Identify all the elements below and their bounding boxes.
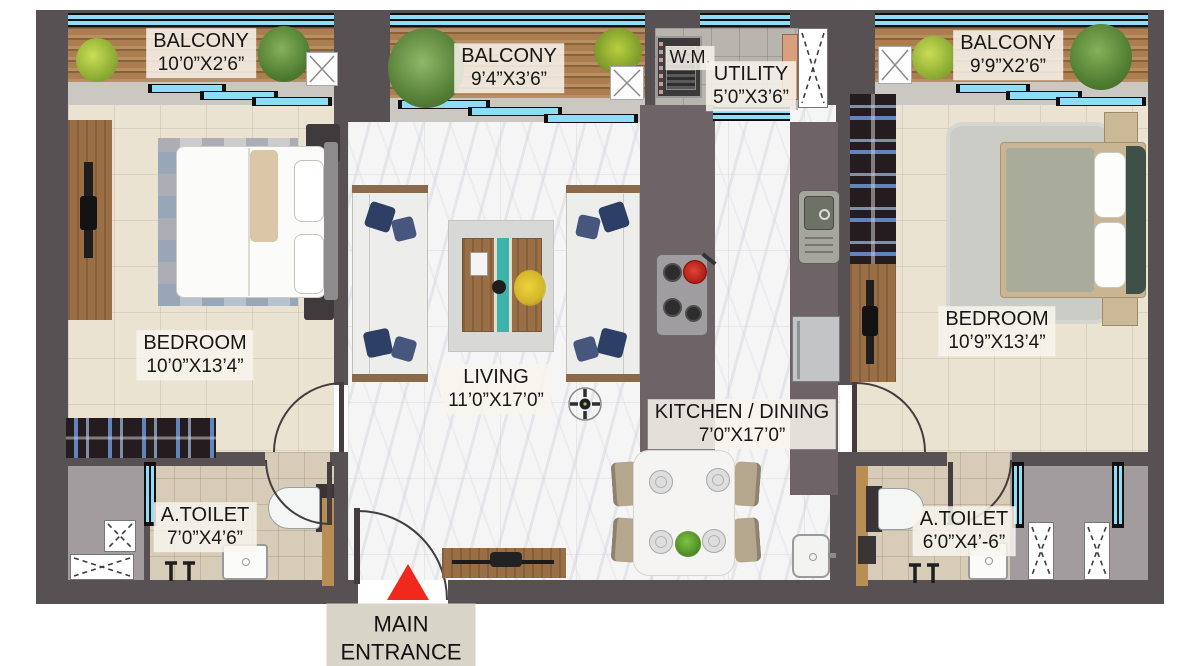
wall-duct-left-edge	[144, 526, 150, 590]
dining-chair-4	[732, 517, 761, 563]
room-dims: 10’0”X13’4”	[143, 356, 246, 379]
vent-duct-right-b	[1084, 522, 1110, 580]
refrigerator	[792, 316, 840, 382]
window-top-balcony-mid	[390, 13, 645, 27]
sofa-left	[352, 185, 428, 382]
room-dims: 5’0”X3’6”	[713, 87, 789, 110]
drain-marker-balcony-mid	[610, 66, 644, 100]
hob-cooktop	[656, 254, 708, 336]
toilet-right-shower-taps	[906, 558, 946, 584]
plant-balcony-mid-bush	[388, 28, 464, 108]
room-name: KITCHEN / DINING	[655, 400, 829, 424]
label-utility: UTILITY 5’0”X3’6”	[706, 61, 796, 111]
bed-left-headboard	[324, 142, 338, 300]
room-name: BEDROOM	[945, 307, 1048, 331]
room-dims: 9’4”X3’6”	[461, 69, 557, 92]
drain-marker-balcony-left	[306, 52, 338, 86]
coffee-table-book	[470, 252, 488, 276]
sofa-right	[566, 185, 640, 382]
wall-balcony-utility-divider	[645, 10, 655, 110]
label-bedroom-left: BEDROOM 10’0”X13’4”	[136, 330, 253, 380]
wall-bedroom-right-bottom-b	[1012, 452, 1148, 466]
window-top-utility	[700, 13, 790, 27]
room-dims: 11’0”X17’0”	[448, 390, 544, 413]
wardrobe-bedroom-left	[66, 418, 216, 458]
label-bedroom-right: BEDROOM 10’9”X13’4”	[938, 306, 1055, 356]
bed-right-headboard	[1126, 146, 1146, 294]
room-name: LIVING	[448, 365, 544, 389]
label-living: LIVING 11’0”X17’0”	[441, 364, 551, 414]
bed-left-throw	[250, 150, 278, 242]
room-dims: 10’0”X2’6”	[153, 54, 249, 77]
plant-balcony-left-bush	[258, 26, 310, 82]
wardrobe-bedroom-right	[850, 94, 896, 264]
bed-right-pillow-1	[1094, 152, 1126, 218]
plant-balcony-right-bush	[1070, 24, 1132, 90]
window-top-balcony-left	[68, 13, 334, 27]
wall-bottom-left	[36, 580, 358, 604]
drain-marker-balcony-right	[878, 46, 912, 84]
room-dims: 9’9”X2’6”	[960, 56, 1056, 79]
label-toilet-right: A.TOILET 6’0”X4’-6”	[913, 506, 1016, 556]
wall-toilet-left-living	[334, 452, 348, 604]
room-dims: 6’0”X4’-6”	[920, 532, 1009, 555]
room-name: BALCONY	[461, 44, 557, 68]
bed-right-mattress	[1006, 148, 1094, 292]
vent-duct-right-a	[1028, 522, 1054, 580]
ceiling-fan-icon	[565, 384, 605, 424]
sliding-window-bedroom-left-3	[252, 97, 332, 106]
dining-chair-3	[732, 461, 761, 507]
toilet-right-shelf	[858, 536, 876, 564]
room-name: UTILITY	[713, 62, 789, 86]
room-name: A.TOILET	[161, 503, 250, 527]
wall-bedroom-right-bottom-a	[856, 452, 947, 466]
sliding-window-living-3	[544, 114, 638, 123]
tv-console-tv	[490, 552, 522, 567]
bed-left-pillow-1	[294, 160, 324, 222]
label-kitchen-dining: KITCHEN / DINING 7’0”X17’0”	[648, 399, 836, 449]
vent-duct-left-wide	[70, 554, 134, 580]
dining-centerpiece-plant	[675, 531, 701, 557]
room-name: BEDROOM	[143, 331, 246, 355]
nightstand-bedroom-right-top	[1104, 112, 1138, 146]
toilet-left-shower-taps	[162, 556, 202, 582]
label-main-entrance: MAIN ENTRANCE	[326, 604, 475, 666]
room-dims: 10’9”X13’4”	[945, 332, 1048, 355]
coffee-table-flowers	[514, 270, 546, 306]
plant-balcony-left-small	[76, 38, 118, 82]
room-name: A.TOILET	[920, 507, 1009, 531]
vent-shaft-utility	[798, 28, 828, 108]
label-balcony-left: BALCONY 10’0”X2’6”	[146, 28, 256, 78]
label-balcony-right: BALCONY 9’9”X2’6”	[953, 30, 1063, 80]
room-dims: 7’0”X17’0”	[655, 425, 829, 448]
pot-on-hob	[683, 260, 707, 284]
kitchen-sink	[798, 190, 840, 264]
wall-left	[36, 10, 68, 604]
main-entrance-marker	[387, 564, 429, 600]
wall-right	[1148, 10, 1164, 604]
room-dims: 7’0”X4’6”	[161, 528, 250, 551]
tv-bedroom-left-base	[80, 196, 97, 230]
appliance-label: W.M.	[670, 47, 711, 69]
label-toilet-left: A.TOILET 7’0”X4’6”	[154, 502, 257, 552]
plant-balcony-right-small	[912, 36, 956, 80]
floor-plan: BALCONY 10’0”X2’6” BALCONY 9’4”X3’6” W.M…	[0, 0, 1200, 666]
vent-duct-left-square	[104, 520, 136, 552]
label-balcony-mid: BALCONY 9’4”X3’6”	[454, 43, 564, 93]
room-name: BALCONY	[960, 31, 1056, 55]
bed-right-pillow-2	[1094, 222, 1126, 288]
wash-basin-dining	[792, 534, 830, 578]
coffee-table-bowl	[492, 280, 506, 294]
bed-left-pillow-2	[294, 234, 324, 294]
wall-bottom-right	[448, 580, 1164, 604]
room-name: BALCONY	[153, 29, 249, 53]
window-duct-right-b	[1112, 462, 1124, 528]
dining-table	[633, 450, 735, 576]
sliding-window-bedroom-right-3	[1056, 97, 1146, 106]
tv-bedroom-right-base	[862, 306, 878, 336]
